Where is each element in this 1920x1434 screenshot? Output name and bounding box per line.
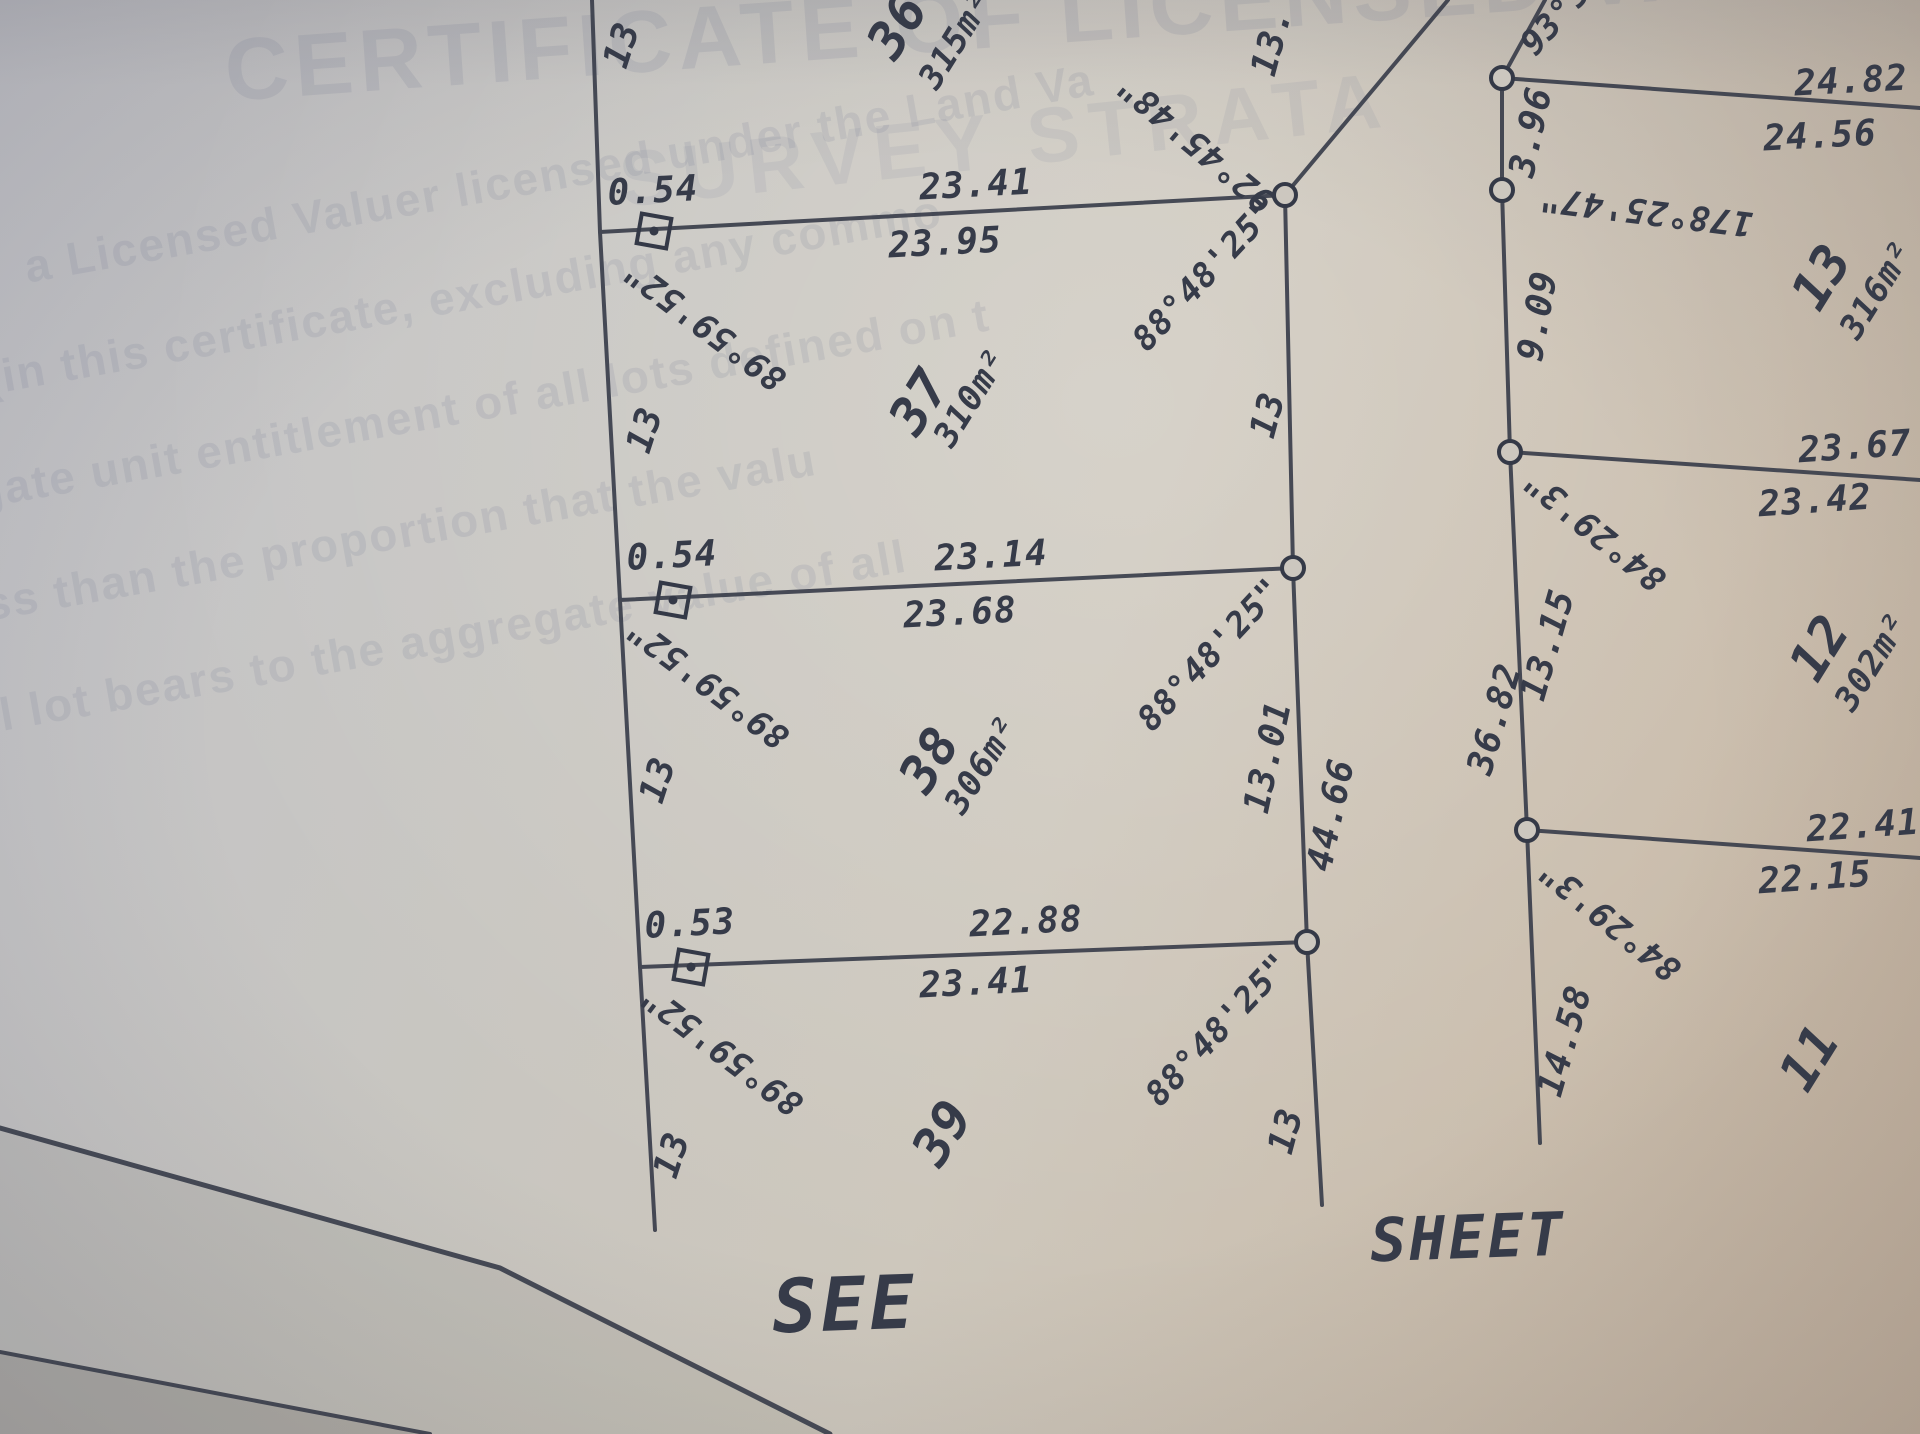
offset-distance: 0.54 [607, 168, 700, 214]
rear-length: 22.15 [1757, 854, 1873, 903]
frontage-length: 22.88 [968, 899, 1083, 946]
frontage-length: 23.14 [933, 533, 1048, 580]
rear-length: 23.95 [887, 220, 1002, 267]
frontage-length: 24.82 [1793, 58, 1908, 105]
lot-east-boundary [1285, 0, 1448, 1205]
offset-distance: 0.53 [644, 901, 737, 947]
frontage-length: 23.67 [1797, 423, 1913, 472]
frontage-length: 22.41 [1805, 802, 1920, 851]
see-sheet-note-right: SHEET [1369, 1200, 1567, 1277]
rear-length: 23.41 [918, 960, 1033, 1007]
rear-length: 23.68 [902, 590, 1017, 637]
offset-distance: 0.54 [626, 533, 719, 579]
see-sheet-note-left: SEE [771, 1259, 920, 1350]
frontage-length: 23.41 [918, 162, 1033, 209]
survey-plan-photo: CERTIFICATE OF LICENSED VALUER SURVEY ST… [0, 0, 1920, 1434]
rear-length: 23.42 [1757, 477, 1873, 526]
rear-length: 24.56 [1762, 113, 1877, 160]
